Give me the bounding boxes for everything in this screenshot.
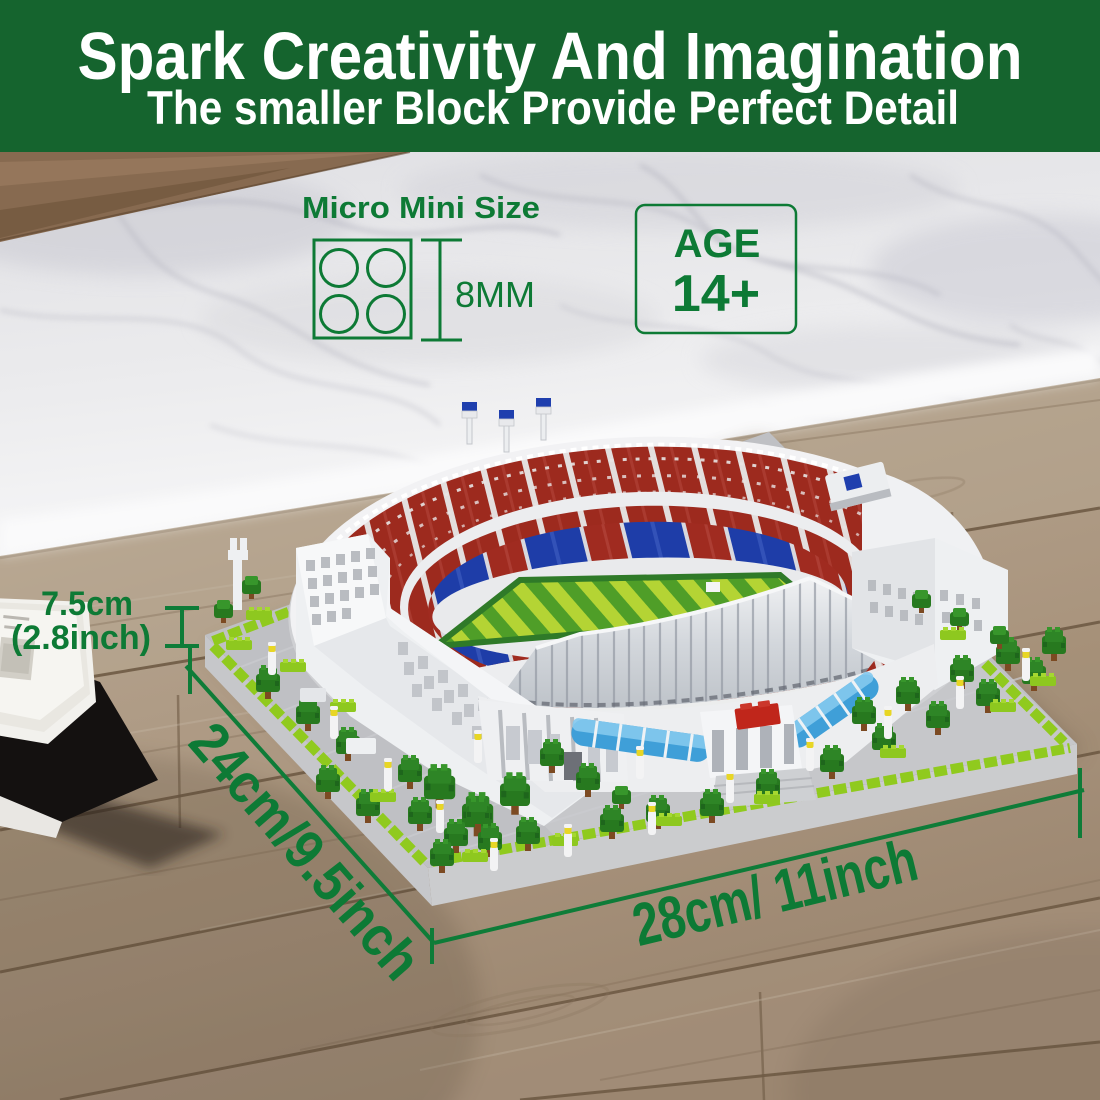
- svg-text:7.5cm: 7.5cm: [41, 585, 133, 623]
- svg-text:AGE: AGE: [674, 222, 761, 266]
- svg-text:Micro Mini Size: Micro Mini Size: [302, 190, 540, 225]
- svg-text:The smaller Block Provide Perf: The smaller Block Provide Perfect Detail: [147, 81, 959, 134]
- svg-text:(2.8inch): (2.8inch): [11, 619, 151, 657]
- svg-text:14+: 14+: [672, 265, 760, 323]
- svg-text:8MM: 8MM: [455, 274, 535, 315]
